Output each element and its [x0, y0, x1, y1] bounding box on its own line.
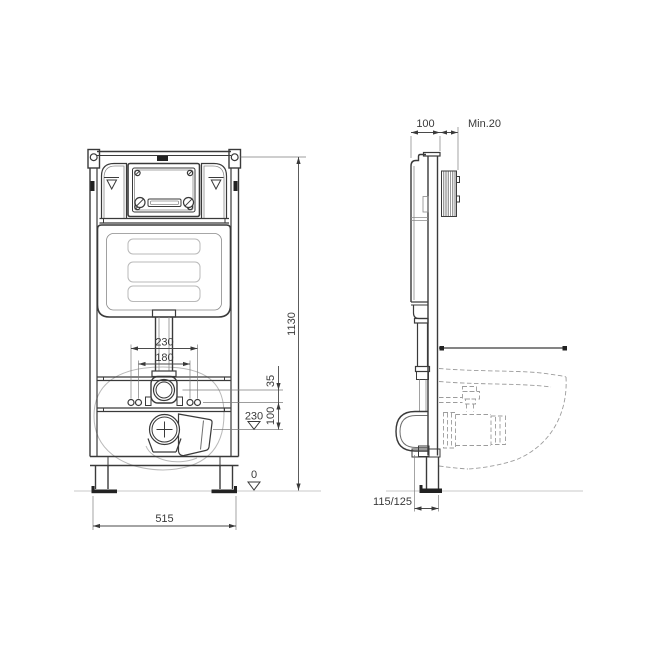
side-wing-left	[102, 164, 127, 219]
outlet-elbow	[179, 414, 213, 456]
level-marker-floor: 0	[248, 469, 260, 490]
side-view: 100 Min.20 115/125	[373, 118, 583, 512]
dim-depth-label: 100	[416, 118, 434, 130]
level-marker-outlet: 230	[245, 411, 263, 430]
leg-side	[420, 457, 443, 493]
seat-reference-line	[439, 346, 567, 351]
corner-bracket-left	[88, 150, 100, 169]
access-panel	[128, 164, 200, 217]
dim-height-label: 1130	[286, 312, 298, 336]
legs-front	[96, 466, 233, 490]
outlet-connector	[148, 414, 212, 456]
dim-wall-min: Min.20	[440, 118, 501, 170]
cistern-outlet-collar	[153, 310, 176, 317]
foot-plates-front	[92, 486, 238, 493]
level-floor-label: 0	[251, 469, 257, 481]
dim-35-100: 35 100	[265, 366, 281, 430]
dim-inner-bolts-label: 180	[155, 352, 173, 364]
rail-mark-right	[234, 181, 238, 191]
elbow-side	[396, 412, 440, 458]
side-wing-right	[202, 164, 227, 219]
wc-bowl-outline-side	[439, 369, 566, 470]
frame-rails	[90, 168, 239, 457]
wc-frame-technical-drawing: 230 180 35 100 230 0	[0, 0, 650, 650]
dim-outer-bolts-label: 230	[155, 337, 173, 349]
drawing-svg: 230 180 35 100 230 0	[0, 0, 650, 650]
dim-outlet-axis: 115/125	[373, 455, 438, 512]
corner-bracket-right	[229, 150, 241, 169]
top-cap	[157, 156, 168, 161]
dim-wall-min-label: Min.20	[468, 118, 501, 130]
panel-slot	[148, 199, 181, 207]
dim-width: 515	[93, 496, 236, 530]
dim-inlet-gap-label: 35	[265, 375, 277, 387]
cistern-ribs	[128, 239, 200, 302]
wall-bracket-hatched	[442, 171, 460, 217]
cistern-side	[411, 155, 428, 324]
dim-width-label: 515	[155, 513, 173, 525]
dim-outlet-axis-label: 115/125	[373, 496, 412, 508]
water-level-symbol-right	[209, 178, 224, 190]
bottom-bar	[90, 457, 239, 466]
cistern-front	[98, 225, 231, 317]
water-level-symbol-left	[104, 178, 119, 190]
top-bar	[97, 152, 231, 162]
level-outlet-label: 230	[245, 411, 263, 423]
outlet-pipe-dashed	[444, 413, 506, 449]
front-view: 230 180 35 100 230 0	[74, 150, 321, 531]
upper-cross-rail	[100, 219, 230, 224]
flush-bend-dashed	[439, 387, 480, 412]
dim-bolt-height-label: 100	[265, 407, 277, 425]
rail-mark-left	[91, 181, 95, 191]
dim-height: 1130	[241, 157, 307, 491]
